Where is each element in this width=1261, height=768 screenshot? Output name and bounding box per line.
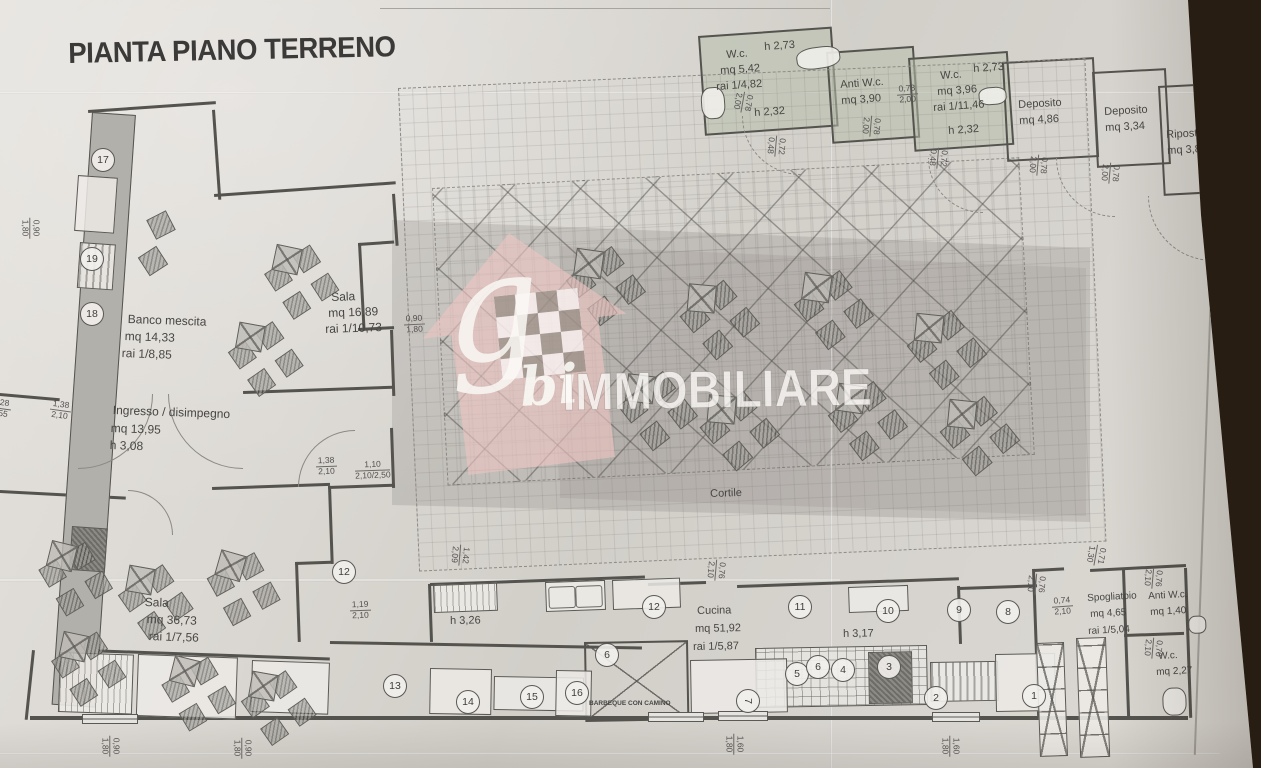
position-marker-2: 2	[924, 686, 948, 710]
dimension-label: 0,762,10	[1025, 573, 1047, 595]
floor-plan-photo: PIANTA PIANO TERRENO 1719181213141516121…	[0, 0, 1261, 768]
dimension-label: 1,282,55	[0, 397, 12, 420]
equipment-xhatch	[1076, 637, 1110, 758]
dimension-height: 2,00	[899, 93, 916, 104]
dimension-label: 0,720,48	[927, 147, 949, 169]
dimension-label: 1,601,80	[940, 736, 960, 757]
chair-icon	[223, 598, 251, 626]
wall-segment	[1124, 632, 1184, 637]
position-marker-7: 7	[736, 689, 760, 713]
table-top	[58, 631, 90, 663]
room-label: h 2,32	[948, 124, 979, 138]
room-label: Banco mescita	[128, 313, 207, 328]
room-label: mq 1,40	[1150, 606, 1187, 618]
table-top	[235, 322, 266, 353]
table-cluster	[683, 283, 755, 355]
dimension-width: 0,90	[110, 736, 121, 757]
wall-segment	[295, 561, 331, 565]
wall-segment	[392, 194, 399, 246]
dimension-height: 2,10/2,50	[355, 469, 391, 480]
dimension-label: 0,702,10	[1142, 637, 1164, 659]
chair-icon	[146, 210, 176, 240]
dimension-height: 2,10	[51, 408, 69, 420]
dimension-height: 1,80	[101, 738, 111, 755]
table-top	[271, 244, 303, 276]
room-label: Ripostiglio	[1166, 127, 1217, 141]
room-label: mq 2,27	[1156, 666, 1193, 678]
paper-crease	[0, 752, 1220, 755]
dimension-label: 1,382,10	[316, 456, 337, 477]
dimension-label: 0,711,30	[1085, 543, 1108, 567]
dimension-height: 2,10	[706, 561, 717, 578]
room-label: h 3,17	[843, 628, 874, 640]
room-label: Cortile	[710, 488, 742, 501]
table-top	[914, 313, 945, 344]
table-top	[801, 272, 833, 304]
dimension-height: 2,00	[1028, 156, 1039, 173]
chair-icon	[260, 717, 289, 746]
window-symbol	[932, 712, 980, 722]
chair-icon	[275, 349, 304, 378]
dimension-label: 0,782,00	[896, 83, 918, 104]
dimension-label: 0,782,00	[860, 115, 882, 137]
dimension-label: 1,192,10	[350, 600, 371, 621]
position-marker-3: 3	[877, 655, 901, 679]
position-marker-11: 11	[788, 595, 812, 619]
position-marker-17: 17	[91, 148, 115, 172]
window-symbol	[82, 714, 138, 724]
position-marker-9: 9	[947, 598, 971, 622]
window-symbol	[648, 712, 704, 722]
chair-icon	[282, 291, 311, 320]
dimension-width: 1,60	[734, 734, 745, 755]
dimension-height: 1,80	[406, 323, 423, 334]
room-label: mq 3,34	[1105, 121, 1145, 135]
dimension-height: 0,48	[928, 149, 939, 166]
room-label: Sala	[331, 290, 355, 303]
dimension-label: 0,762,10	[1142, 567, 1164, 589]
room-label: Sala	[145, 596, 169, 609]
position-marker-4: 4	[831, 658, 855, 682]
chair-icon	[138, 246, 168, 276]
dimension-label: 1,601,80	[724, 734, 744, 755]
table-cluster	[51, 631, 125, 705]
position-marker-12: 12	[332, 560, 356, 584]
dimension-height: 2,10	[1054, 605, 1071, 616]
plan-paper-sheet: PIANTA PIANO TERRENO 1719181213141516121…	[0, 0, 1261, 768]
room-label: W.c.	[940, 70, 962, 83]
wall-segment	[88, 101, 216, 113]
dimension-label: 0,782,00	[732, 90, 755, 114]
room-label: h 3,26	[450, 615, 481, 627]
dimension-label: 0,782,00	[1099, 162, 1121, 184]
window-symbol	[718, 711, 768, 721]
dimension-height: 1,80	[233, 740, 243, 757]
equipment-sink	[545, 580, 606, 612]
wall-segment	[214, 181, 396, 197]
dimension-height: 2,10	[352, 609, 369, 620]
room-label: Deposito	[1104, 105, 1148, 119]
chair-icon	[252, 582, 280, 610]
room-label: BARBEQUE CON CAMINO	[589, 701, 671, 708]
dimension-label: 0,901,80	[20, 218, 40, 239]
wall-segment	[212, 110, 221, 200]
table-top	[125, 565, 156, 596]
room-label: rai 1/8,85	[122, 347, 172, 361]
position-marker-6: 6	[806, 655, 830, 679]
dimension-label: 0,720,48	[765, 135, 787, 157]
room-label: W.c.	[726, 49, 748, 62]
wall-segment	[25, 650, 35, 720]
room-label: mq 4,65	[1090, 608, 1127, 620]
table-top	[687, 283, 717, 313]
sheet-border-line	[380, 8, 830, 9]
dimension-label: 0,901,80	[232, 738, 252, 759]
table-cluster	[796, 272, 871, 347]
room-label: h 2,73	[973, 62, 1004, 76]
room-label: mq 16,89	[328, 305, 378, 319]
room-label: h 2,32	[754, 106, 785, 120]
room-label: mq 4,86	[1019, 114, 1059, 128]
dimension-label: 1,102,10/2,50	[355, 459, 391, 480]
wall-segment	[1034, 567, 1064, 572]
position-marker-6: 6	[595, 643, 619, 667]
table-top	[947, 399, 978, 430]
table-top	[573, 248, 605, 280]
position-marker-18: 18	[80, 302, 104, 326]
position-marker-13: 13	[383, 674, 407, 698]
dimension-height: 2,55	[0, 406, 9, 418]
room-label: Cucina	[697, 605, 731, 617]
dimension-width: 1,60	[950, 736, 961, 757]
dimension-height: 2,00	[861, 117, 872, 134]
equipment-lines	[433, 583, 498, 613]
wall-segment	[358, 240, 394, 246]
dimension-height: 2,10	[318, 465, 335, 476]
position-marker-14: 14	[456, 690, 480, 714]
dimension-height: 0,48	[766, 137, 777, 154]
dimension-label: 0,742,10	[1051, 595, 1073, 616]
dimension-label: 0,782,00	[1027, 154, 1049, 176]
dimension-width: 0,90	[242, 738, 253, 759]
table-cluster	[147, 211, 175, 239]
room-label: Anti W.c.	[1148, 590, 1188, 603]
position-marker-19: 19	[80, 247, 104, 271]
room-label: mq 51,92	[695, 623, 741, 635]
dimension-height: 1,80	[21, 220, 31, 237]
dimension-label: 0,901,80	[403, 313, 425, 334]
room-label: mq 3,86	[1167, 144, 1207, 158]
room-label: mq 36,73	[147, 613, 197, 627]
dimension-height: 2,00	[1100, 164, 1111, 181]
table-cluster	[204, 549, 282, 627]
equipment-plain	[74, 175, 118, 234]
equipment-fix	[1162, 687, 1187, 716]
dimension-label: 1,422,09	[449, 544, 471, 566]
position-marker-15: 15	[520, 685, 544, 709]
position-marker-1: 1	[1022, 684, 1046, 708]
room-label: rai 1/7,56	[149, 630, 199, 644]
door-swing-arc	[1148, 196, 1213, 261]
table-cluster	[229, 322, 302, 395]
room-label: rai 1/10,73	[325, 321, 382, 336]
dimension-height: 2,09	[450, 546, 461, 563]
room-label: rai 1/5,87	[693, 641, 739, 653]
dimension-height: 2,10	[1143, 569, 1154, 586]
room-label: rai 1/5,04	[1088, 625, 1130, 638]
table-cluster	[140, 248, 166, 274]
position-marker-12: 12	[642, 595, 666, 619]
equipment-fix	[1188, 615, 1207, 634]
table-cluster	[242, 671, 315, 744]
wall-segment	[328, 486, 334, 564]
room-label: h 2,73	[764, 40, 795, 54]
position-marker-8: 8	[996, 600, 1020, 624]
watermark-brand-name: IMMOBILIARE	[562, 361, 872, 419]
room-label: mq 14,33	[125, 330, 175, 344]
dimension-height: 2,10	[1143, 639, 1154, 656]
position-marker-16: 16	[565, 681, 589, 705]
table-top	[248, 671, 279, 702]
dimension-height: 1,80	[941, 738, 951, 755]
chair-icon	[179, 703, 208, 732]
dimension-height: 2,10	[1026, 575, 1037, 592]
table-cluster	[943, 399, 1016, 472]
room-label: mq 13,95	[111, 422, 161, 436]
dimension-label: 0,901,80	[100, 736, 120, 757]
dimension-height: 1,80	[725, 736, 735, 753]
dimension-label: 1,382,10	[49, 399, 72, 422]
wall-segment	[295, 562, 301, 642]
chair-icon	[84, 571, 113, 600]
dimension-label: 0,762,10	[705, 559, 727, 581]
room-label: Spogliatoio	[1087, 591, 1137, 604]
room-label: h 3,08	[110, 439, 144, 453]
table-cluster	[910, 313, 983, 386]
position-marker-10: 10	[876, 599, 900, 623]
dimension-width: 0,90	[30, 218, 41, 239]
room-label: Deposito	[1018, 98, 1062, 112]
door-swing-arc	[128, 490, 173, 535]
